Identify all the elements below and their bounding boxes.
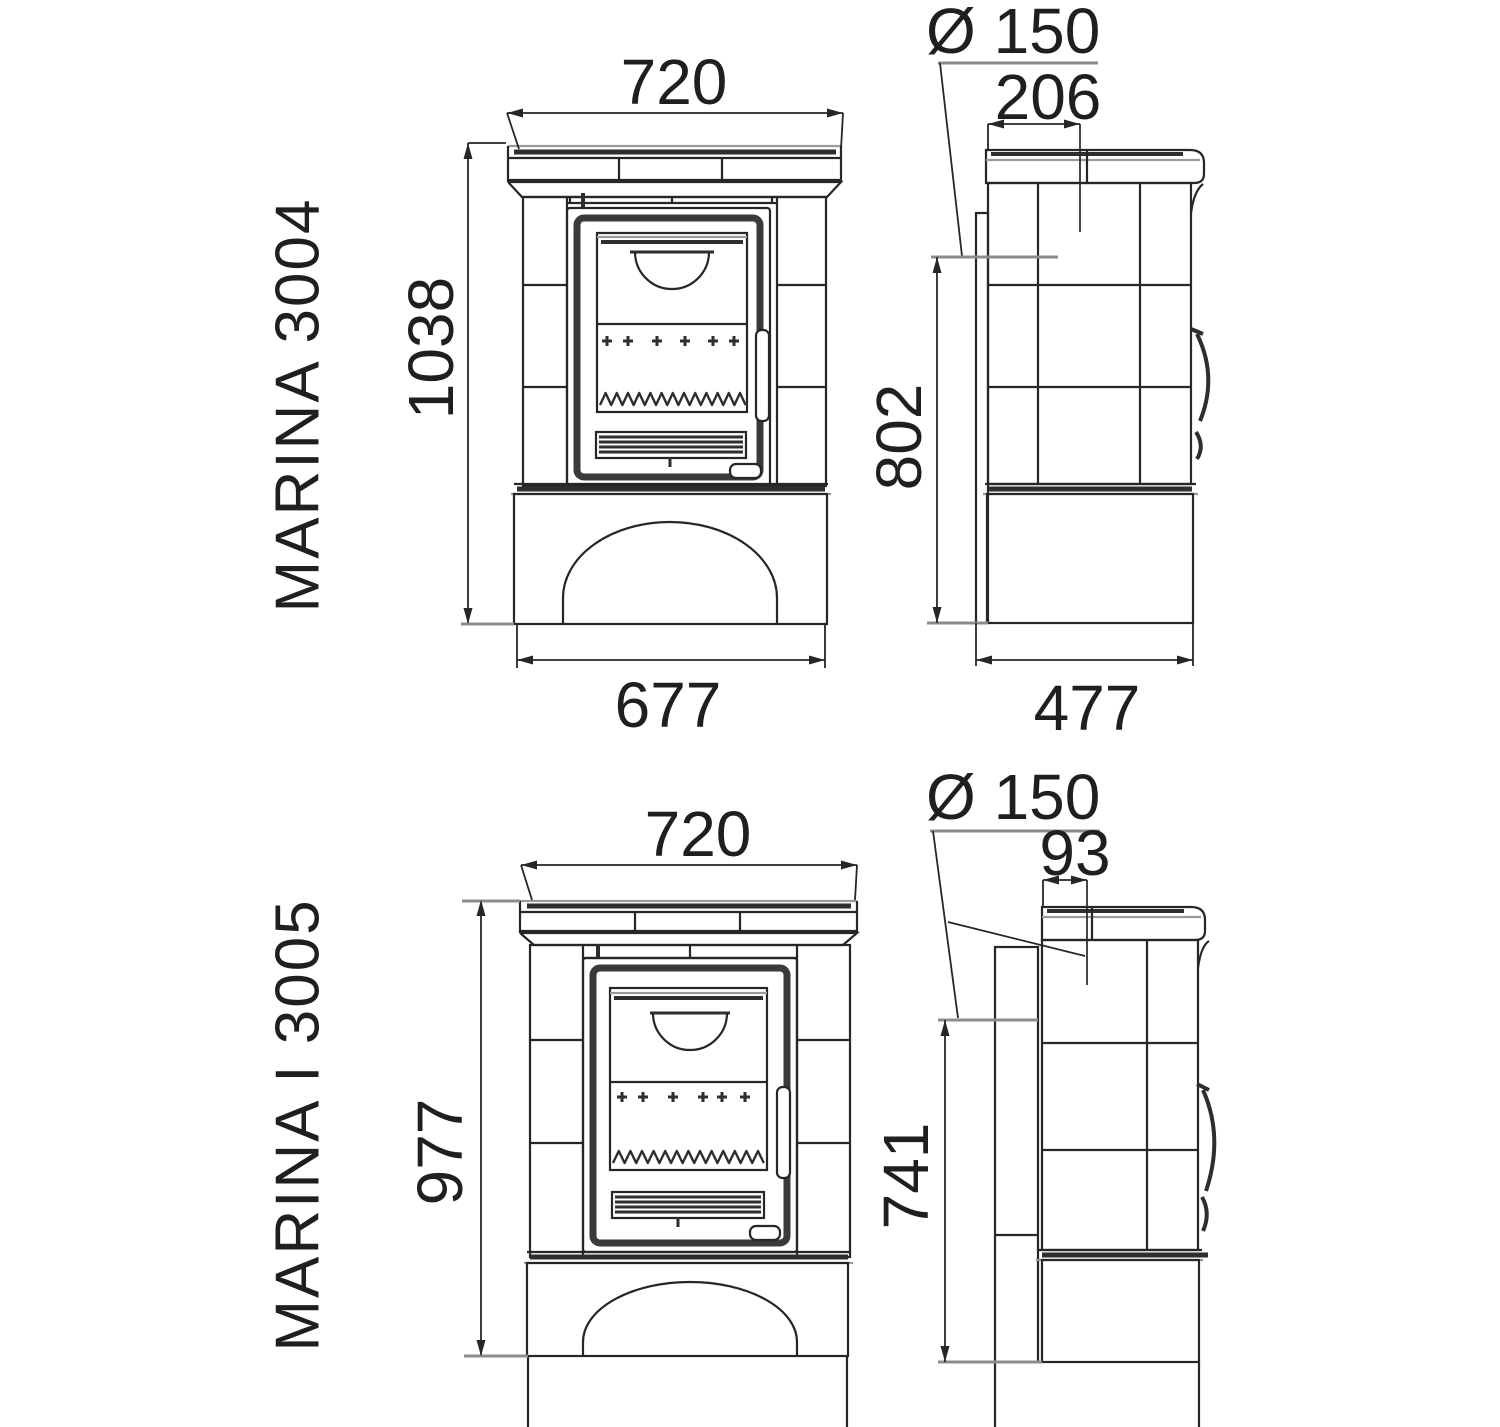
dim-flue-top-offset: 206: [988, 61, 1101, 232]
lower-hinge-arc: [1196, 432, 1201, 459]
side-body-tiles: [1042, 940, 1209, 1250]
cornice: [508, 182, 841, 197]
door-glass: [597, 233, 747, 412]
dim-flue-rear-height-value: 741: [870, 1123, 942, 1230]
dim-flue-diameter: Ø 150: [926, 761, 1100, 1018]
fire-door: [583, 958, 797, 1252]
side-shelf-band: [983, 484, 1198, 494]
dim-top-width-value: 720: [621, 46, 728, 118]
plinth-arch: [583, 1282, 797, 1356]
side-base: [987, 494, 1193, 623]
handle-bracket: [1191, 329, 1203, 334]
model-name-3004: MARINA 3004: [264, 198, 333, 613]
dim-height: 1038: [395, 143, 514, 624]
fire-door: [567, 208, 770, 486]
dim-line: [507, 113, 843, 149]
door-glass: [610, 988, 767, 1170]
model-name-3005: MARINA I 3005: [264, 898, 333, 1351]
dim-height-value: 1038: [395, 277, 467, 419]
dim-line: [468, 143, 506, 624]
marina-3005-front-view: [520, 901, 857, 1427]
dim-line: [517, 624, 825, 668]
stove-dimension-diagram: 720 1038 677 Ø 150 206: [0, 0, 1500, 1427]
plinth: [514, 494, 827, 624]
marina-3004-side-view: [976, 150, 1208, 623]
dim-flue-top-offset-value: 93: [1039, 817, 1110, 889]
plinth-cutoff-edges: [528, 1356, 847, 1427]
dim-depth: 477: [976, 623, 1193, 744]
marina-3005-drawing: 720 977 Ø 150 93: [264, 761, 1215, 1427]
slab-tile-joints: [619, 158, 722, 180]
dim-top-width: 720: [507, 46, 843, 149]
side-top-slab: [1042, 907, 1205, 940]
side-base: [1042, 1260, 1199, 1362]
slab-tile-joints: [635, 912, 740, 931]
dim-base-width: 677: [517, 624, 825, 741]
rear-channel-outline: [995, 947, 1038, 1362]
dim-flue-rear-height: 802: [863, 257, 1058, 623]
top-slab: [520, 901, 857, 945]
dim-flue-rear-height: 741: [870, 1020, 1042, 1362]
dim-line: [521, 865, 857, 900]
plinth-outline: [527, 1263, 848, 1356]
marina-3004-front-view: [508, 146, 841, 624]
cornice: [520, 933, 857, 945]
dim-height: 977: [404, 900, 528, 1356]
side-tile-verticals: [1038, 183, 1140, 484]
handle-arc: [1203, 1090, 1214, 1191]
plinth: [527, 1263, 848, 1427]
leader-diagonal: [940, 63, 962, 256]
door-handle: [756, 330, 769, 421]
marina-3004-drawing: 720 1038 677 Ø 150 206: [264, 0, 1209, 744]
side-front-flare: [1198, 941, 1209, 968]
side-tile-horizontals: [1042, 1043, 1198, 1150]
top-strip-joints: [583, 945, 797, 958]
dim-flue-top-offset-value: 206: [995, 61, 1102, 133]
shelf-band: [524, 1252, 853, 1263]
side-top-slab: [986, 150, 1204, 183]
lower-hinge-arc: [1202, 1197, 1207, 1231]
dim-flue-rear-height-value: 802: [863, 384, 935, 491]
side-front-flare: [1191, 184, 1203, 213]
side-shelf-band: [1036, 1250, 1208, 1260]
stove-dimension-sheet: 720 1038 677 Ø 150 206: [0, 0, 1500, 1427]
marina-3005-side-view: [995, 907, 1214, 1427]
plinth-arch: [563, 522, 777, 624]
dim-top-width: 720: [521, 798, 857, 900]
dim-height-value: 977: [404, 1099, 476, 1206]
door-latch: [750, 1226, 780, 1240]
side-tile-horizontals: [988, 285, 1191, 387]
handle-arc: [1197, 334, 1208, 421]
dim-depth-value: 477: [1034, 672, 1141, 744]
dim-flue-top-offset: 93: [1039, 817, 1110, 985]
top-slab: [508, 146, 841, 197]
dim-top-width-value: 720: [645, 798, 752, 870]
side-body-tiles: [988, 183, 1203, 484]
side-body-outline: [988, 183, 1191, 484]
dim-line: [976, 623, 1193, 666]
side-body-outline: [1042, 940, 1198, 1250]
dim-flue-diameter-value: Ø 150: [926, 0, 1100, 67]
side-door-handle: [1197, 1084, 1214, 1231]
dim-base-width-value: 677: [615, 669, 722, 741]
ref-lines: [938, 1020, 1042, 1362]
plinth-outline: [514, 494, 827, 624]
side-door-handle: [1191, 329, 1208, 459]
door-latch: [730, 464, 761, 478]
door-handle: [777, 1087, 790, 1178]
